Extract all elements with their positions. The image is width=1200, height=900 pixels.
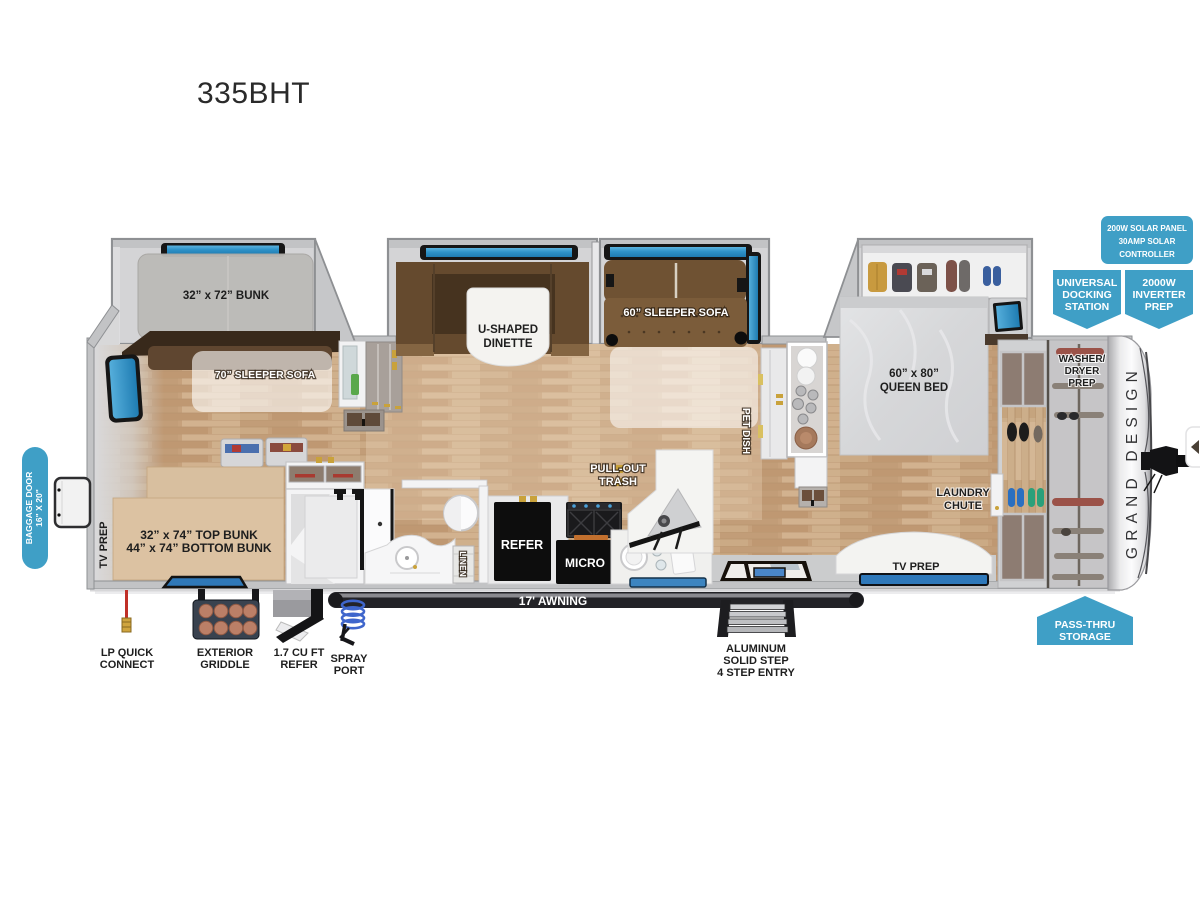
svg-text:ALUMINUM: ALUMINUM [726,643,786,655]
svg-text:60” SLEEPER SOFA: 60” SLEEPER SOFA [623,307,728,319]
svg-text:DRYER: DRYER [1065,366,1100,377]
svg-text:UNIVERSAL: UNIVERSAL [1057,277,1118,289]
svg-text:LP QUICK: LP QUICK [101,647,153,659]
svg-text:335BHT: 335BHT [197,77,310,110]
svg-text:LINEN: LINEN [458,551,468,577]
svg-text:32” x 72” BUNK: 32” x 72” BUNK [183,290,270,302]
svg-text:PULL-OUT: PULL-OUT [590,463,646,475]
svg-text:CONNECT: CONNECT [100,659,155,671]
svg-text:GRAND DESIGN: GRAND DESIGN [1124,365,1141,559]
svg-text:60” x 80”: 60” x 80” [889,368,939,380]
svg-text:REFER: REFER [280,659,317,671]
svg-text:4 STEP ENTRY: 4 STEP ENTRY [717,667,795,679]
svg-text:TV PREP: TV PREP [892,561,939,573]
svg-text:44” x 74” BOTTOM BUNK: 44” x 74” BOTTOM BUNK [126,541,271,555]
svg-text:BAGGAGE DOOR: BAGGAGE DOOR [24,471,34,544]
svg-text:MICRO: MICRO [565,556,605,570]
svg-text:LAUNDRY: LAUNDRY [936,487,990,499]
svg-text:DOCKING: DOCKING [1062,289,1112,301]
svg-text:70” SLEEPER SOFA: 70” SLEEPER SOFA [215,369,316,381]
svg-text:SOLID STEP: SOLID STEP [723,655,788,667]
svg-text:WASHER/: WASHER/ [1059,354,1106,365]
svg-text:PORT: PORT [334,665,365,677]
svg-text:TV PREP: TV PREP [98,521,110,568]
svg-text:17' AWNING: 17' AWNING [519,594,587,608]
svg-text:STATION: STATION [1065,301,1110,313]
svg-text:STORAGE: STORAGE [1059,631,1111,643]
svg-text:PASS-THRU: PASS-THRU [1055,619,1115,631]
svg-text:PREP: PREP [1068,378,1096,389]
svg-text:U-SHAPED: U-SHAPED [478,324,538,336]
svg-text:DINETTE: DINETTE [483,338,533,350]
svg-text:GRIDDLE: GRIDDLE [200,659,250,671]
svg-text:SPRAY: SPRAY [331,653,369,665]
svg-text:INVERTER: INVERTER [1132,289,1186,301]
svg-text:CHUTE: CHUTE [944,500,982,512]
svg-text:2000W: 2000W [1142,277,1175,289]
svg-text:CONTROLLER: CONTROLLER [1119,250,1175,259]
svg-text:PREP: PREP [1145,301,1174,313]
svg-text:32” x 74” TOP BUNK: 32” x 74” TOP BUNK [140,528,258,542]
svg-text:QUEEN BED: QUEEN BED [880,382,948,394]
svg-text:16" X 20": 16" X 20" [34,489,44,527]
svg-text:30AMP SOLAR: 30AMP SOLAR [1119,237,1176,246]
svg-text:1.7 CU FT: 1.7 CU FT [274,647,325,659]
svg-text:200W SOLAR PANEL: 200W SOLAR PANEL [1107,224,1187,233]
svg-text:TRASH: TRASH [599,476,637,488]
svg-text:PET DISH: PET DISH [740,408,751,454]
svg-text:REFER: REFER [501,538,543,552]
svg-text:EXTERIOR: EXTERIOR [197,647,253,659]
